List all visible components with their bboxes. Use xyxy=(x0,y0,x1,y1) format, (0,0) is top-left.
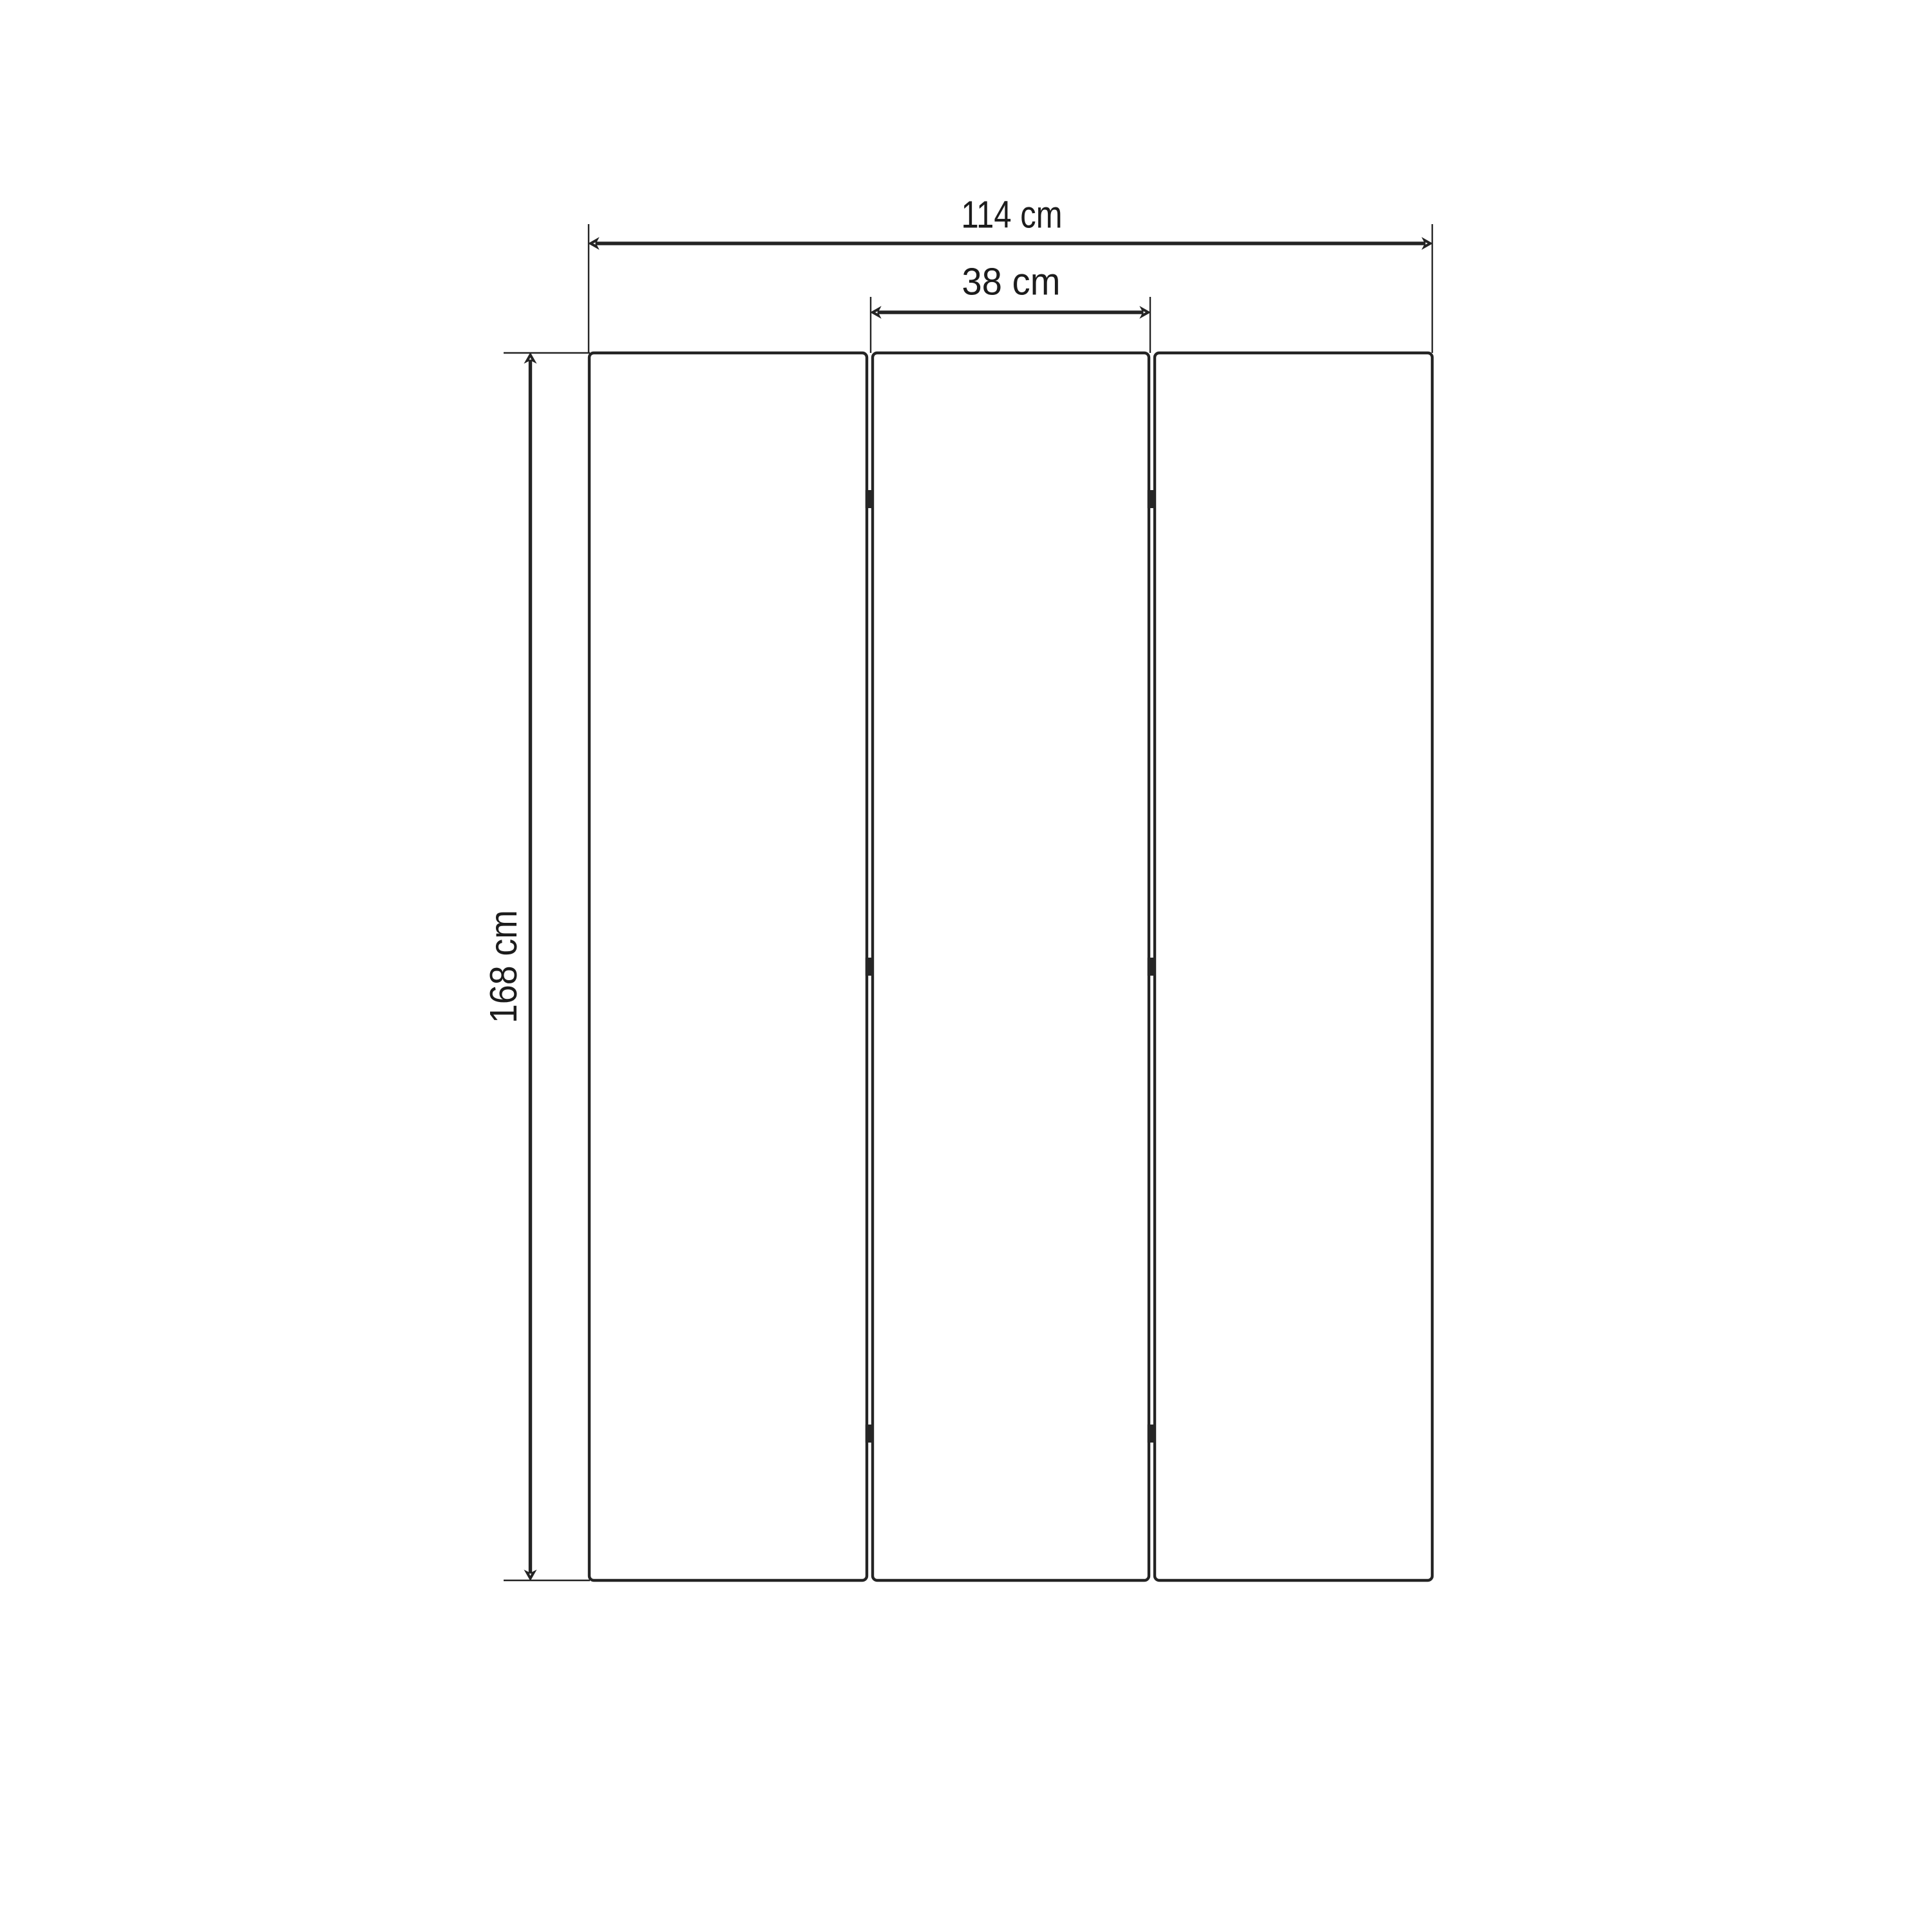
svg-text:114 cm: 114 cm xyxy=(961,194,1063,236)
svg-text:168 cm: 168 cm xyxy=(482,910,525,1023)
svg-text:38 cm: 38 cm xyxy=(962,261,1061,303)
